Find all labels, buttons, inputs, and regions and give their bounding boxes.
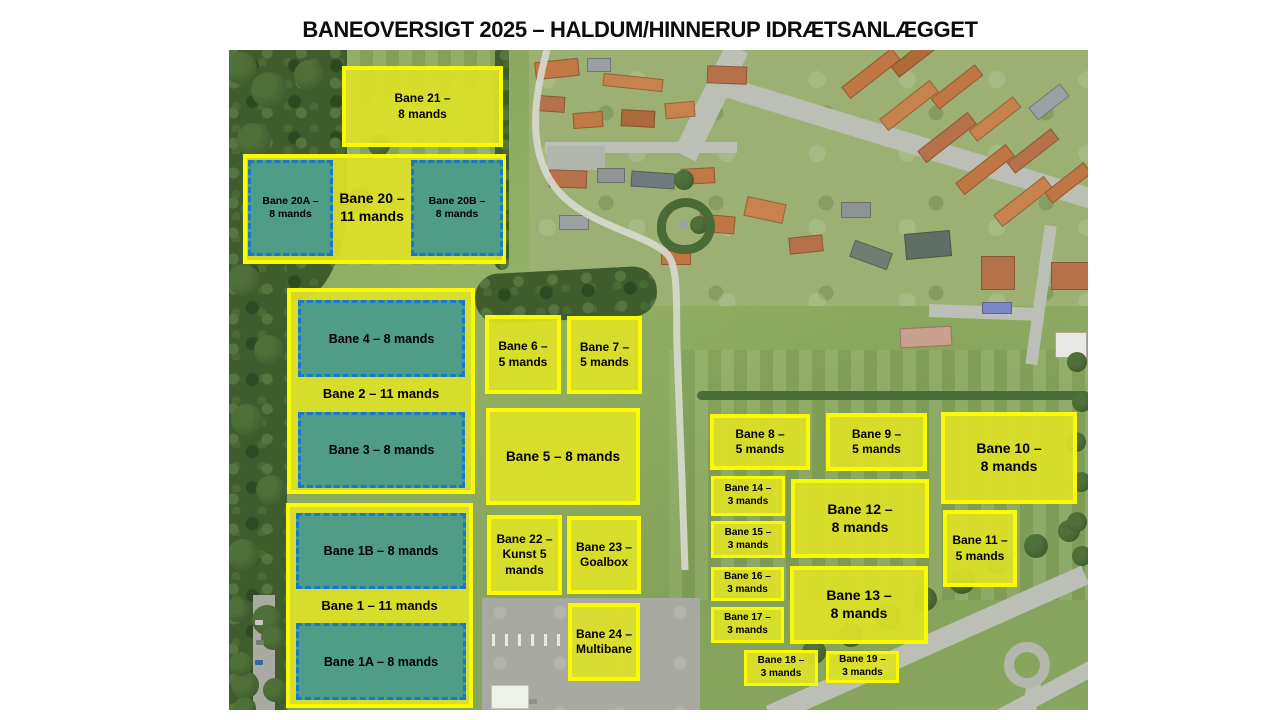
bane-18-label-line: Bane 18 –: [758, 655, 805, 668]
bane-12-label-line: 8 mands: [832, 519, 889, 537]
bane-2-label-label-line: Bane 2 – 11 mands: [323, 386, 439, 403]
bane-3: Bane 3 – 8 mands: [298, 412, 465, 488]
bane-20-label-label-line: 11 mands: [340, 208, 404, 226]
bane-22: Bane 22 –Kunst 5mands: [487, 515, 562, 595]
bane-14: Bane 14 –3 mands: [711, 476, 785, 516]
bane-24-label-line: Multibane: [576, 642, 632, 657]
page-title: BANEOVERSIGT 2025 – HALDUM/HINNERUP IDRÆ…: [0, 17, 1280, 43]
bane-1a-label-line: Bane 1A – 8 mands: [324, 654, 438, 670]
bane-15: Bane 15 –3 mands: [711, 521, 785, 558]
bane-20-label: Bane 20 –11 mands: [333, 160, 411, 256]
bane-12-label-line: Bane 12 –: [827, 501, 892, 519]
bane-1-label: Bane 1 – 11 mands: [290, 589, 469, 623]
bane-13-label-line: 8 mands: [831, 605, 888, 623]
bane-4-label-line: Bane 4 – 8 mands: [329, 331, 435, 347]
bane-6-label-line: Bane 6 –: [498, 339, 547, 354]
bane-7: Bane 7 –5 mands: [567, 316, 642, 394]
bane-7-label-line: Bane 7 –: [580, 340, 629, 355]
bane-18: Bane 18 –3 mands: [744, 650, 818, 686]
bane-14-label-line: Bane 14 –: [725, 483, 772, 496]
bane-24-label-line: Bane 24 –: [576, 627, 632, 642]
bane-17: Bane 17 –3 mands: [711, 607, 784, 643]
bane-2-label: Bane 2 – 11 mands: [291, 377, 471, 412]
bane-17-label-line: 3 mands: [727, 625, 768, 638]
bane-23: Bane 23 –Goalbox: [567, 516, 641, 594]
bane-6-label-line: 5 mands: [499, 355, 548, 370]
bane-22-label-line: mands: [505, 563, 544, 578]
bane-9-label-line: 5 mands: [852, 442, 901, 457]
bane-12: Bane 12 –8 mands: [791, 479, 929, 558]
bane-20a-label-line: Bane 20A –: [262, 195, 318, 208]
bane-19: Bane 19 –3 mands: [826, 651, 899, 683]
bane-20a-label-line: 8 mands: [269, 208, 312, 221]
bane-11: Bane 11 –5 mands: [943, 510, 1017, 587]
bane-20b-label-line: 8 mands: [436, 208, 479, 221]
bane-20b-label-line: Bane 20B –: [429, 195, 486, 208]
bane-19-label-line: 3 mands: [842, 667, 883, 680]
bane-20b: Bane 20B –8 mands: [411, 160, 503, 256]
bane-24: Bane 24 –Multibane: [568, 603, 640, 681]
bane-1b: Bane 1B – 8 mands: [296, 513, 466, 589]
bane-10-label-line: Bane 10 –: [976, 440, 1041, 458]
bane-11-label-line: 5 mands: [956, 549, 1005, 564]
bane-22-label-line: Bane 22 –: [496, 532, 552, 547]
bane-16-label-line: Bane 16 –: [724, 571, 771, 584]
bane-16: Bane 16 –3 mands: [711, 567, 784, 601]
bane-21: Bane 21 –8 mands: [342, 66, 503, 147]
bane-9-label-line: Bane 9 –: [852, 427, 901, 442]
bane-21-label-line: 8 mands: [398, 107, 447, 122]
bane-10: Bane 10 –8 mands: [941, 412, 1077, 504]
bane-7-label-line: 5 mands: [580, 355, 629, 370]
bane-19-label-line: Bane 19 –: [839, 654, 886, 667]
bane-18-label-line: 3 mands: [761, 668, 802, 681]
bane-4: Bane 4 – 8 mands: [298, 300, 465, 377]
bane-14-label-line: 3 mands: [728, 496, 769, 509]
bane-8-label-line: 5 mands: [736, 442, 785, 457]
bane-8: Bane 8 –5 mands: [710, 414, 810, 470]
bane-1-label-label-line: Bane 1 – 11 mands: [321, 598, 437, 615]
bane-17-label-line: Bane 17 –: [724, 612, 771, 625]
bane-15-label-line: Bane 15 –: [725, 527, 772, 540]
aerial-photo: Bane 20A –8 mandsBane 20 –11 mandsBane 2…: [229, 50, 1088, 710]
bane-21-label-line: Bane 21 –: [394, 91, 450, 106]
bane-13-label-line: Bane 13 –: [826, 587, 891, 605]
bane-1a: Bane 1A – 8 mands: [296, 623, 466, 700]
bane-3-label-line: Bane 3 – 8 mands: [329, 442, 435, 458]
bane-16-label-line: 3 mands: [727, 584, 768, 597]
bane-5: Bane 5 – 8 mands: [486, 408, 640, 505]
bane-20a: Bane 20A –8 mands: [248, 160, 333, 256]
bane-9: Bane 9 –5 mands: [826, 413, 927, 471]
bane-1b-label-line: Bane 1B – 8 mands: [324, 543, 439, 559]
bane-13: Bane 13 –8 mands: [790, 566, 928, 644]
bane-23-label-line: Goalbox: [580, 555, 628, 570]
bane-6: Bane 6 –5 mands: [485, 315, 561, 394]
bane-23-label-line: Bane 23 –: [576, 540, 632, 555]
bane-22-label-line: Kunst 5: [502, 547, 546, 562]
bane-20-label-label-line: Bane 20 –: [339, 190, 404, 208]
bane-15-label-line: 3 mands: [728, 540, 769, 553]
bane-10-label-line: 8 mands: [981, 458, 1038, 476]
bane-5-label-line: Bane 5 – 8 mands: [506, 448, 620, 465]
bane-11-label-line: Bane 11 –: [952, 533, 1007, 548]
bane-8-label-line: Bane 8 –: [735, 427, 784, 442]
field-annotations: Bane 20A –8 mandsBane 20 –11 mandsBane 2…: [229, 50, 1088, 710]
